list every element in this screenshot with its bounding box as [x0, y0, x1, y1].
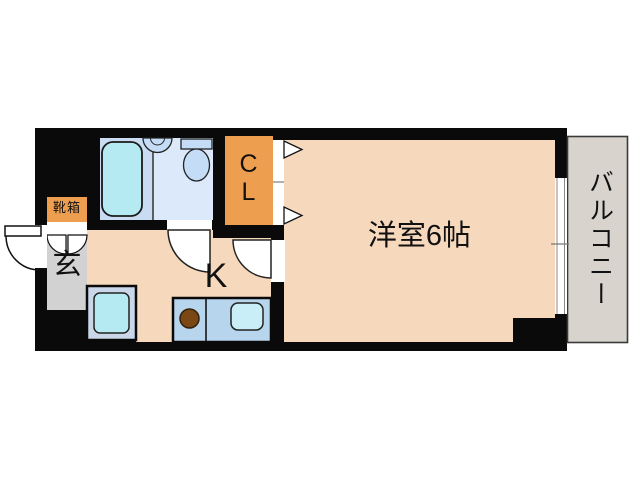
washing-machine-icon	[87, 286, 136, 340]
closet-label-line-1: C	[225, 150, 272, 178]
closet-label: C L	[225, 150, 272, 206]
stove-burner-icon	[180, 309, 199, 328]
closet-label-line-2: L	[225, 178, 272, 206]
floorplan-image: 洋室6帖 K 玄 靴箱 C L バルコニー	[0, 0, 640, 480]
kitchen-doorway	[271, 240, 285, 282]
kitchen-sink-icon	[231, 303, 263, 330]
toilet-icon	[181, 139, 212, 181]
bathroom-doorway	[167, 220, 212, 230]
bathtub-icon	[102, 142, 142, 216]
balcony-label: バルコニー	[570, 136, 628, 342]
entrance-label: 玄	[47, 251, 87, 280]
main-room-label: 洋室6帖	[284, 222, 555, 251]
kitchen-label: K	[196, 259, 236, 293]
kitchen-counter-icon	[173, 298, 271, 342]
shoe-box-label: 靴箱	[47, 201, 87, 214]
pillar	[513, 318, 555, 342]
